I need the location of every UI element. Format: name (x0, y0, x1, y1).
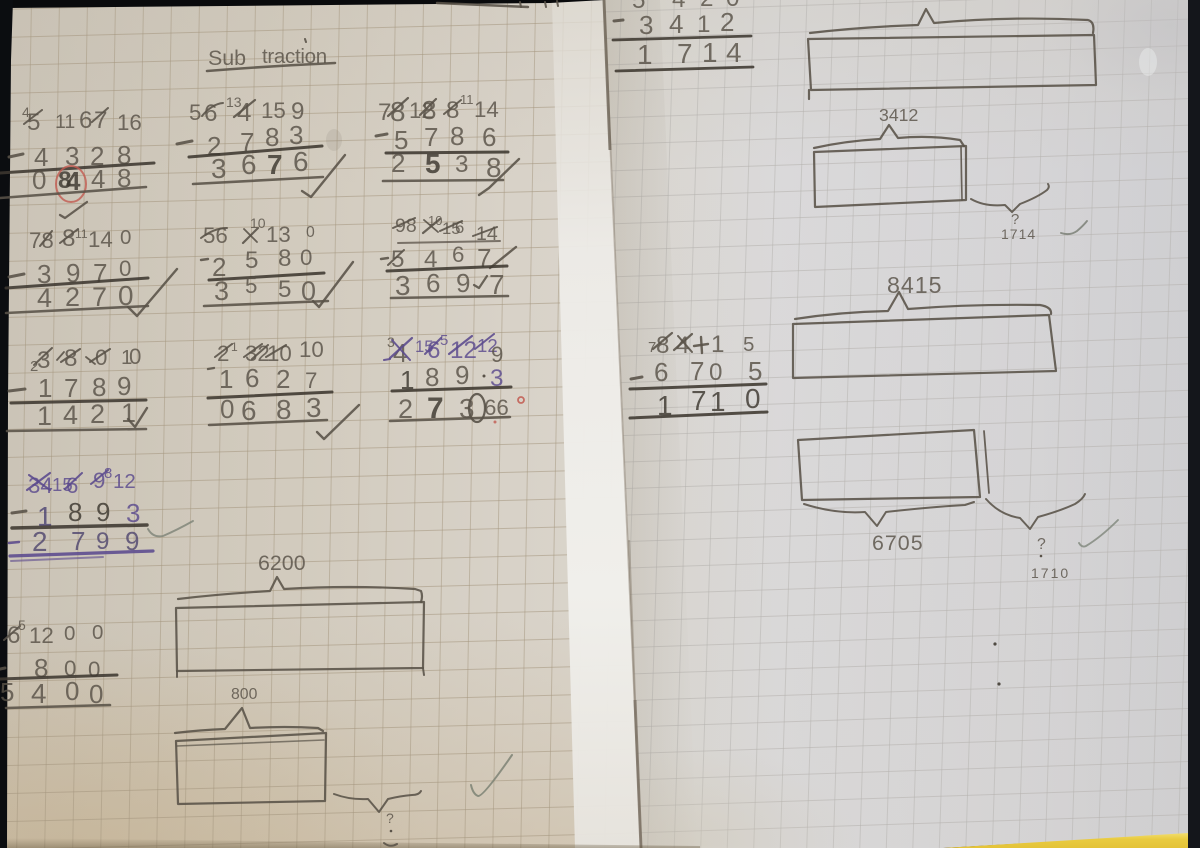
svg-text:1: 1 (38, 373, 52, 403)
svg-text:0: 0 (119, 256, 131, 281)
svg-text:7: 7 (64, 373, 78, 403)
svg-text:6: 6 (426, 268, 440, 298)
svg-text:2: 2 (32, 526, 48, 557)
svg-text:5: 5 (245, 247, 258, 274)
svg-text:0: 0 (300, 245, 312, 270)
svg-text:2: 2 (720, 7, 734, 37)
svg-text:13: 13 (266, 222, 291, 247)
svg-text:1: 1 (702, 37, 718, 68)
svg-text:5: 5 (278, 276, 291, 303)
svg-text:16: 16 (117, 110, 142, 135)
svg-text:2: 2 (90, 399, 105, 429)
svg-text:?: ? (386, 810, 394, 826)
svg-text:8: 8 (265, 122, 279, 152)
svg-text:9: 9 (456, 268, 470, 298)
svg-text:8: 8 (278, 245, 291, 272)
svg-text:0: 0 (32, 165, 46, 195)
svg-text:6: 6 (293, 146, 309, 177)
svg-text:8: 8 (425, 362, 439, 392)
svg-text:78: 78 (29, 228, 54, 253)
svg-text:7: 7 (690, 356, 704, 386)
svg-text:0: 0 (129, 344, 141, 369)
svg-text:8: 8 (68, 497, 82, 527)
svg-text:1: 1 (697, 11, 710, 38)
svg-text:5: 5 (743, 333, 754, 356)
svg-text:14: 14 (88, 227, 113, 252)
svg-text:12: 12 (113, 470, 136, 493)
svg-text:1: 1 (121, 398, 136, 428)
svg-text:8: 8 (104, 466, 112, 482)
svg-text:10: 10 (299, 337, 324, 362)
svg-text:10: 10 (428, 213, 442, 228)
svg-text:3: 3 (306, 392, 322, 423)
svg-text:7: 7 (677, 38, 693, 69)
svg-text:11: 11 (55, 111, 75, 133)
svg-text:5: 5 (748, 356, 762, 386)
svg-text:6: 6 (241, 395, 257, 426)
svg-text:4: 4 (726, 37, 742, 68)
svg-text:4: 4 (63, 400, 78, 430)
svg-text:9: 9 (96, 497, 110, 527)
svg-text:6: 6 (245, 363, 259, 393)
svg-text:1: 1 (637, 39, 653, 70)
svg-text:3: 3 (455, 151, 468, 178)
svg-text:1: 1 (219, 364, 233, 394)
svg-text:3: 3 (211, 153, 227, 184)
svg-text:3412: 3412 (879, 105, 918, 125)
svg-text:14: 14 (474, 97, 499, 122)
svg-text:9: 9 (96, 528, 109, 555)
svg-text:7: 7 (691, 385, 707, 416)
svg-text:8415: 8415 (887, 272, 943, 298)
svg-text:5: 5 (245, 273, 257, 298)
svg-text:56: 56 (203, 223, 228, 248)
svg-text:9: 9 (117, 371, 131, 401)
svg-text:4: 4 (31, 678, 47, 709)
svg-text:1: 1 (231, 340, 238, 354)
svg-text:10: 10 (250, 215, 266, 231)
svg-text:0: 0 (65, 676, 79, 706)
svg-text:6: 6 (79, 107, 92, 134)
svg-text:5: 5 (440, 333, 448, 349)
svg-text:8: 8 (450, 121, 464, 151)
svg-text:800: 800 (231, 686, 258, 703)
svg-text:5: 5 (189, 100, 201, 125)
svg-text:6200: 6200 (258, 551, 306, 575)
svg-text:6: 6 (482, 122, 496, 152)
svg-text:6705: 6705 (872, 531, 924, 555)
svg-text:0: 0 (92, 621, 103, 644)
svg-text:0: 0 (745, 383, 761, 414)
svg-text:4: 4 (37, 283, 52, 313)
svg-text:1: 1 (37, 401, 52, 431)
svg-text:3: 3 (639, 10, 653, 40)
svg-text:8: 8 (62, 225, 75, 252)
svg-text:1: 1 (710, 386, 726, 417)
svg-text:5: 5 (0, 677, 14, 707)
svg-text:11: 11 (460, 92, 474, 107)
svg-text:0: 0 (64, 622, 75, 645)
svg-text:7: 7 (305, 368, 317, 393)
svg-text:1714: 1714 (1001, 226, 1036, 242)
svg-text:9: 9 (455, 360, 469, 390)
svg-text:0: 0 (709, 359, 722, 386)
svg-text:6: 6 (452, 242, 464, 267)
svg-text:8: 8 (92, 372, 106, 402)
svg-text:12: 12 (29, 623, 54, 648)
svg-text:?: ? (1037, 536, 1046, 553)
svg-text:5: 5 (425, 148, 441, 179)
svg-text:1710: 1710 (1031, 565, 1070, 581)
svg-text:2: 2 (276, 364, 290, 394)
svg-text:2: 2 (391, 148, 405, 178)
svg-text:2: 2 (65, 282, 80, 312)
svg-text:1: 1 (711, 331, 724, 358)
svg-text:7: 7 (267, 149, 283, 180)
svg-text:0: 0 (306, 224, 315, 241)
svg-text:0: 0 (220, 394, 234, 424)
svg-text:5: 5 (18, 617, 26, 633)
svg-text:Sub: Sub (208, 46, 246, 70)
svg-text:6: 6 (654, 357, 668, 387)
svg-text:3: 3 (214, 276, 229, 306)
svg-text:9: 9 (491, 342, 503, 367)
svg-text:0: 0 (120, 226, 131, 249)
svg-text:6: 6 (241, 149, 257, 180)
svg-text:7: 7 (71, 526, 85, 556)
svg-text:4: 4 (669, 9, 683, 39)
svg-text:15: 15 (261, 98, 286, 123)
svg-text:6: 6 (455, 218, 464, 237)
svg-text:3: 3 (395, 270, 411, 301)
